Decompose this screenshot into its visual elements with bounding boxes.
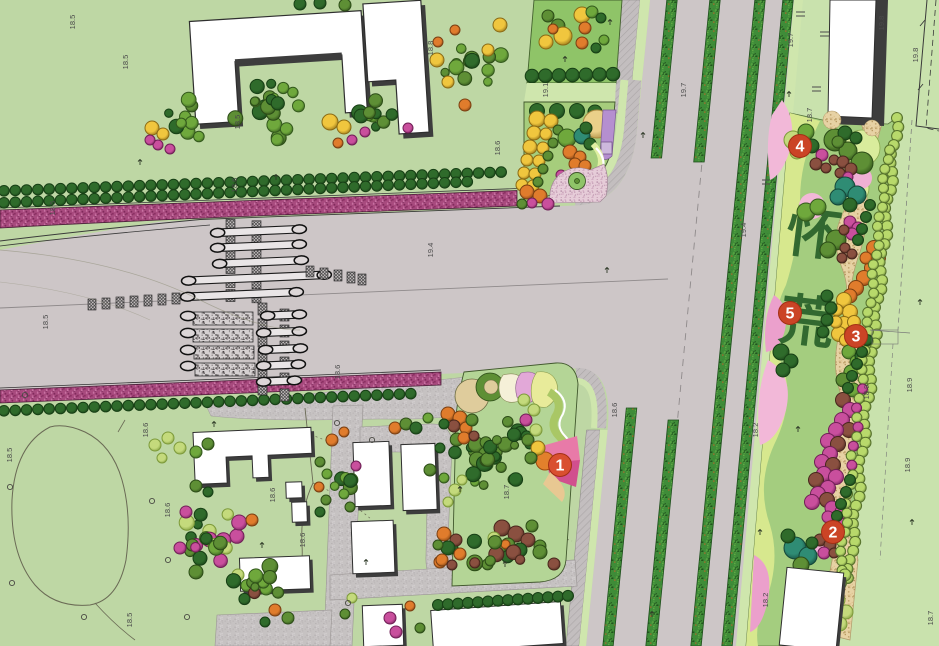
svg-text:18.7: 18.7 xyxy=(926,611,935,626)
svg-text:18.5: 18.5 xyxy=(233,115,242,130)
svg-text:18.2: 18.2 xyxy=(751,423,760,438)
svg-text:18.6: 18.6 xyxy=(298,533,307,548)
svg-text:19.7: 19.7 xyxy=(679,83,688,98)
svg-text:2: 2 xyxy=(829,525,838,542)
svg-text:18.6: 18.6 xyxy=(333,365,342,380)
svg-text:18.7: 18.7 xyxy=(502,485,511,500)
svg-text:18.5: 18.5 xyxy=(121,55,130,70)
svg-text:19.1: 19.1 xyxy=(541,83,550,98)
svg-text:18.8: 18.8 xyxy=(426,41,435,56)
svg-text:18.5: 18.5 xyxy=(125,613,134,628)
svg-text:1: 1 xyxy=(556,458,565,475)
svg-text:4: 4 xyxy=(796,139,805,156)
svg-text:18.9: 18.9 xyxy=(905,378,914,393)
svg-text:19.8: 19.8 xyxy=(877,16,886,31)
svg-text:3: 3 xyxy=(852,329,861,346)
svg-text:18.5: 18.5 xyxy=(5,448,14,463)
svg-text:18.9: 18.9 xyxy=(862,385,871,400)
svg-text:18.6: 18.6 xyxy=(163,503,172,518)
svg-text:18.5: 18.5 xyxy=(41,315,50,330)
svg-text:18.6: 18.6 xyxy=(141,423,150,438)
svg-text:18.9: 18.9 xyxy=(903,458,912,473)
svg-text:5: 5 xyxy=(786,306,795,323)
svg-text:19.7: 19.7 xyxy=(786,33,795,48)
svg-text:18.6: 18.6 xyxy=(610,403,619,418)
svg-text:18.5: 18.5 xyxy=(48,201,57,216)
svg-text:18.7: 18.7 xyxy=(805,108,814,123)
svg-text:18.2: 18.2 xyxy=(761,593,770,608)
svg-text:19.8: 19.8 xyxy=(911,48,920,63)
svg-text:18.6: 18.6 xyxy=(230,178,239,193)
svg-text:18.5: 18.5 xyxy=(68,15,77,30)
svg-text:18.6: 18.6 xyxy=(268,488,277,503)
svg-text:19.4: 19.4 xyxy=(426,243,435,258)
svg-text:19.4: 19.4 xyxy=(739,223,748,238)
svg-text:18.6: 18.6 xyxy=(493,141,502,156)
